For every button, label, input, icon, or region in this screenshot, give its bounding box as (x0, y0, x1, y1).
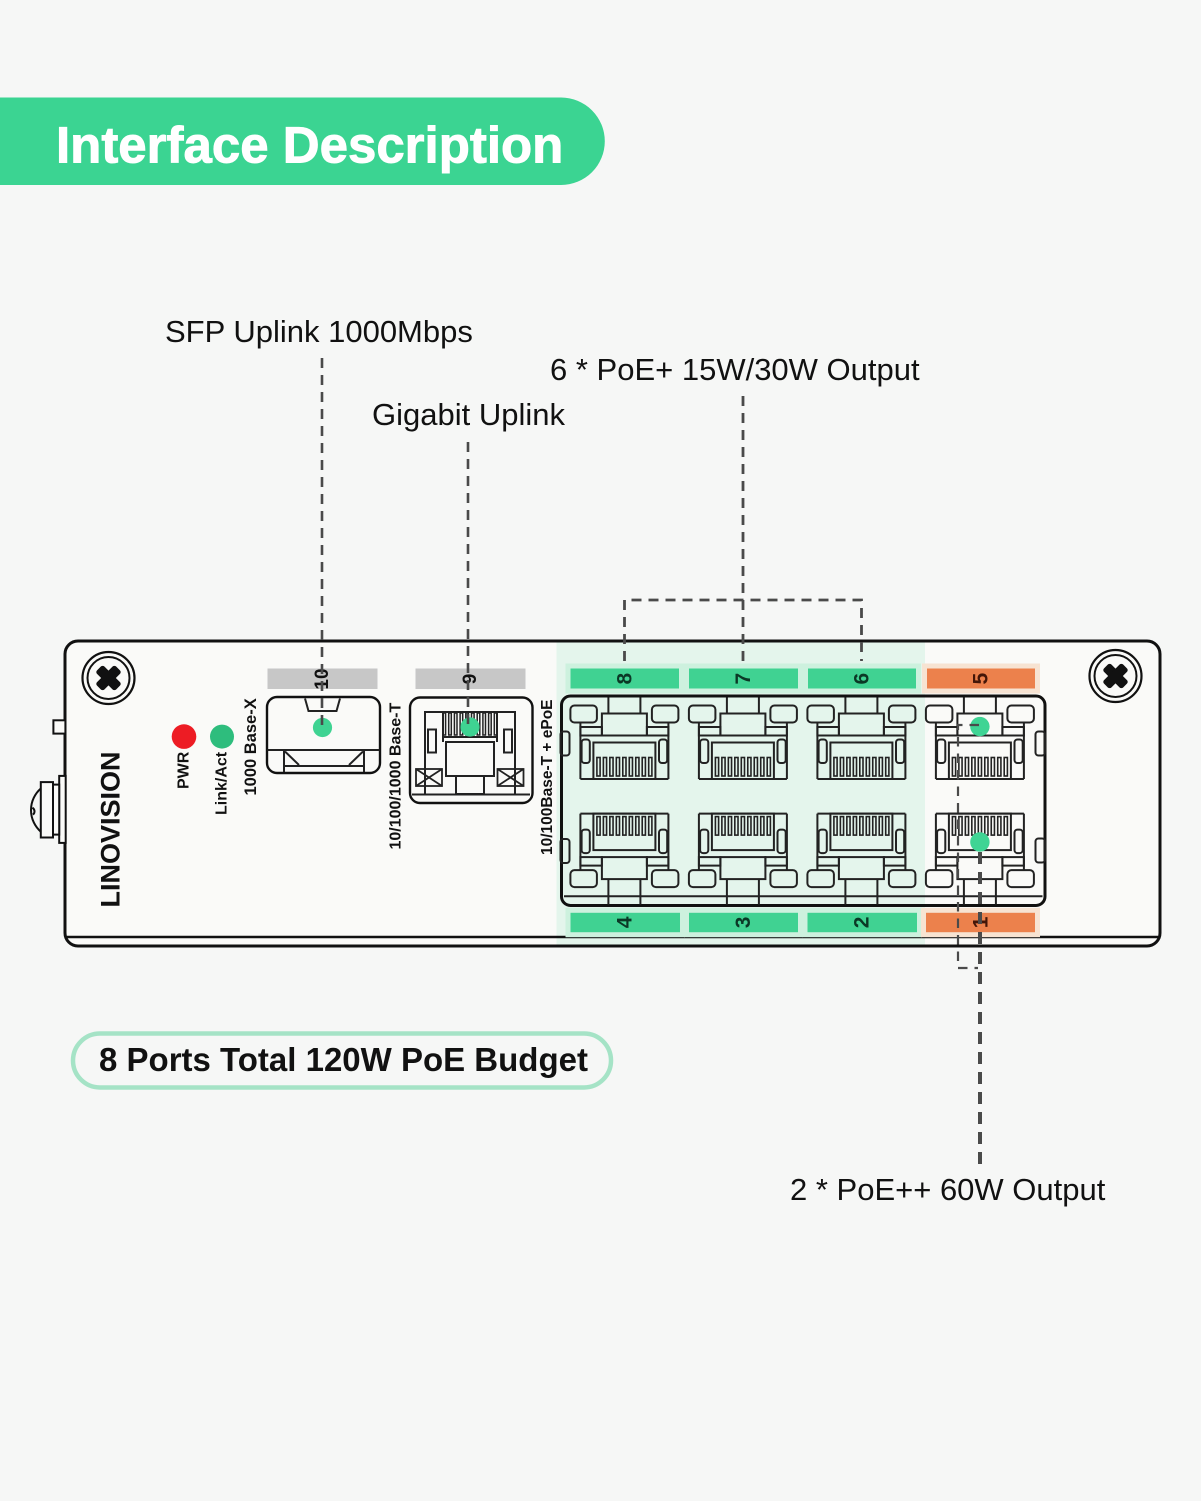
svg-text:Link/Act: Link/Act (214, 751, 231, 815)
svg-text:SFP Uplink 1000Mbps: SFP Uplink 1000Mbps (165, 314, 473, 349)
svg-text:8 Ports Total 120W PoE Budget: 8 Ports Total 120W PoE Budget (99, 1041, 588, 1078)
svg-text:1000 Base-X: 1000 Base-X (242, 698, 260, 795)
svg-text:10/100/1000 Base-T: 10/100/1000 Base-T (388, 703, 405, 850)
svg-text:LINOVISION: LINOVISION (96, 751, 126, 907)
svg-text:2 * PoE++ 60W Output: 2 * PoE++ 60W Output (790, 1172, 1106, 1207)
svg-text:PWR: PWR (176, 751, 193, 789)
svg-text:10/100Base-T + ePoE: 10/100Base-T + ePoE (539, 699, 556, 855)
svg-text:5: 5 (970, 673, 993, 685)
svg-text:6 * PoE+ 15W/30W Output: 6 * PoE+ 15W/30W Output (550, 352, 920, 387)
svg-text:Gigabit Uplink: Gigabit Uplink (372, 397, 565, 432)
svg-text:9: 9 (460, 674, 481, 685)
svg-text:Interface Description: Interface Description (56, 117, 563, 174)
svg-text:6: 6 (851, 673, 874, 685)
svg-text:2: 2 (851, 917, 874, 929)
svg-text:8: 8 (614, 673, 637, 685)
svg-text:7: 7 (732, 673, 755, 685)
svg-text:4: 4 (614, 916, 637, 928)
svg-text:3: 3 (732, 917, 755, 929)
